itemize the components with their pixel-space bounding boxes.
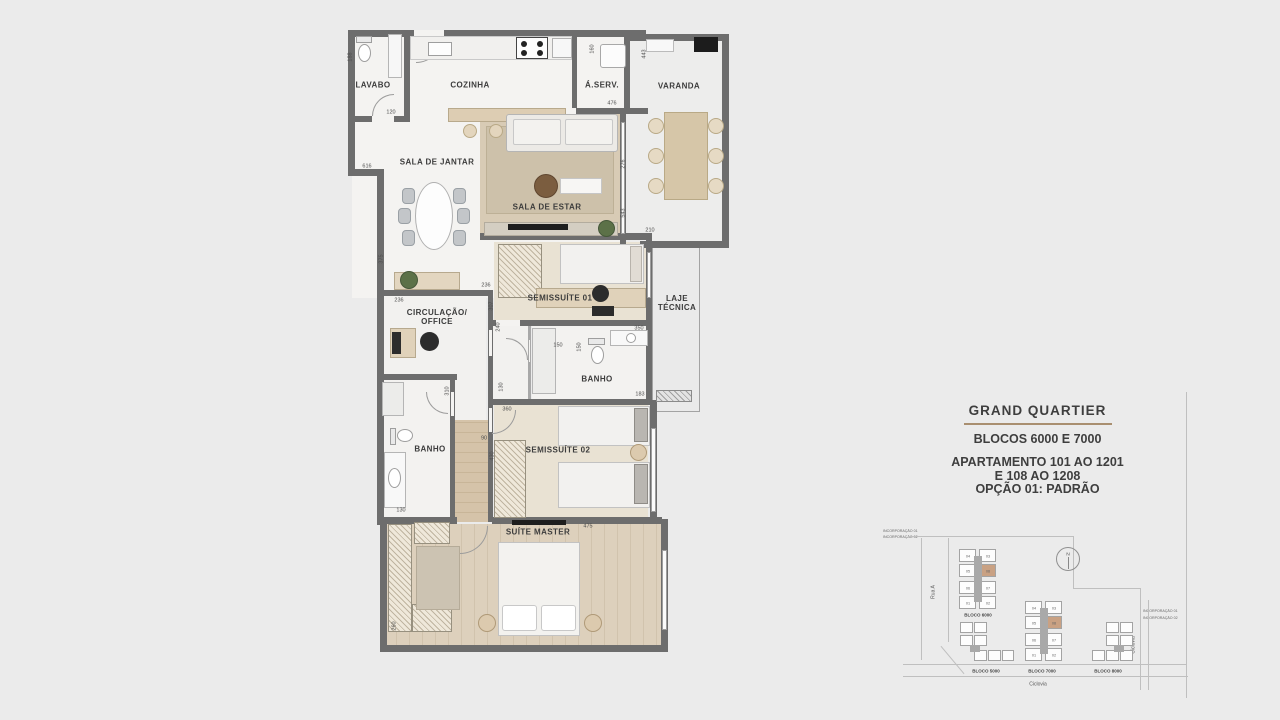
unit-number: 05 xyxy=(1031,620,1035,624)
north-arrow: N xyxy=(1056,547,1080,571)
unit-number: 03 xyxy=(985,553,989,557)
unit-cell xyxy=(960,622,973,633)
building-core xyxy=(974,556,982,602)
unit-cell xyxy=(1106,622,1119,633)
north-needle xyxy=(1068,557,1069,569)
bloco-5000-footprint xyxy=(960,620,1014,664)
building-core xyxy=(1114,645,1124,652)
unit-number: 05 xyxy=(965,568,969,572)
unit-cell xyxy=(1002,650,1014,661)
unit-number: 02 xyxy=(985,600,989,604)
boundary-line xyxy=(908,536,1073,537)
road-edge xyxy=(921,538,922,660)
bloco-7000-label: BLOCO 7000 xyxy=(1028,669,1056,674)
bloco-7000-footprint: 04 03 05 08 06 07 01 02 xyxy=(1024,600,1064,662)
north-label: N xyxy=(1066,551,1070,557)
road-edge xyxy=(948,538,949,642)
bike-path-line xyxy=(1148,600,1149,690)
incorporacao-note: INCORPORAÇÃO 01 xyxy=(883,529,918,533)
floor-plan-sheet: LAVABO COZINHA Á.SERV. VARANDA SALA DE J… xyxy=(0,0,1280,720)
bloco-6000-footprint: 04 03 05 08 06 07 01 02 xyxy=(958,548,998,610)
bloco-8000-label: BLOCO 8000 xyxy=(1094,669,1122,674)
unit-cell xyxy=(1092,650,1105,661)
boundary-line xyxy=(1073,588,1140,589)
unit-number: 06 xyxy=(1031,637,1035,641)
unit-number: 02 xyxy=(1051,652,1055,656)
bloco-5000-label: BLOCO 5000 xyxy=(972,669,1000,674)
unit-number: 08 xyxy=(985,568,989,572)
bloco-6000-label: BLOCO 6000 xyxy=(964,613,992,618)
ciclovia-label: Ciclovia xyxy=(1029,681,1047,687)
boundary-line xyxy=(1140,588,1141,690)
building-core xyxy=(1040,608,1048,654)
unit-number: 08 xyxy=(1051,620,1055,624)
road-edge xyxy=(903,664,1186,665)
unit-number: 03 xyxy=(1051,605,1055,609)
unit-number: 04 xyxy=(965,553,969,557)
boundary-line xyxy=(1186,392,1187,698)
unit-number: 07 xyxy=(985,585,989,589)
bloco-8000-footprint xyxy=(1084,620,1134,664)
unit-cell xyxy=(988,650,1001,661)
unit-number: 04 xyxy=(1031,605,1035,609)
unit-cell xyxy=(974,622,987,633)
site-plan: INCORPORAÇÃO 01 INCORPORAÇÃO 02 INCORPOR… xyxy=(0,0,1280,720)
building-core xyxy=(970,645,980,652)
street-label: Rua A xyxy=(930,585,936,599)
unit-number: 01 xyxy=(1031,652,1035,656)
unit-number: 06 xyxy=(965,585,969,589)
bike-path-line xyxy=(903,676,1188,677)
unit-number: 07 xyxy=(1051,637,1055,641)
unit-number: 01 xyxy=(965,600,969,604)
unit-cell xyxy=(1120,622,1133,633)
